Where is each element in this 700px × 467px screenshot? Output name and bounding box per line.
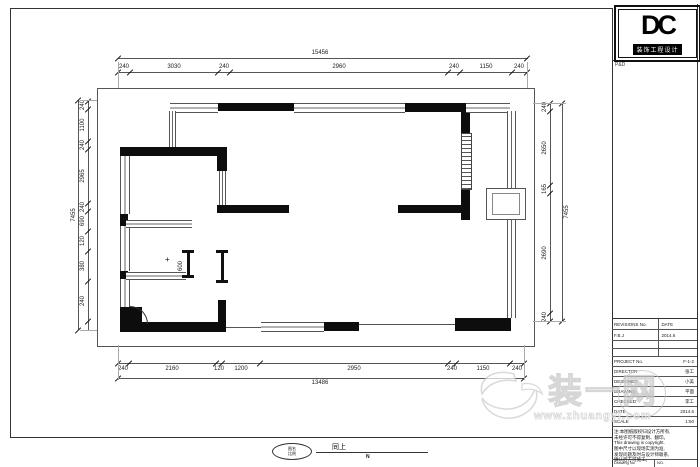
wall-segment [455, 318, 511, 331]
wall-segment [120, 147, 220, 156]
dim-line-right [550, 103, 551, 321]
door-jamb [187, 253, 190, 275]
center-cross-mark: + [165, 255, 170, 264]
dim-number: 120 [80, 236, 86, 246]
ellipse-line2: 比例 [288, 452, 296, 457]
dim-line-bottom-total [118, 378, 524, 379]
partition-segment [126, 220, 192, 228]
revision-date [658, 341, 697, 348]
dim-number: 2160 [165, 366, 178, 372]
window-segment [120, 156, 130, 214]
dim-line-top [118, 72, 528, 73]
revision-date [658, 349, 697, 356]
extension-line [527, 62, 528, 88]
window-segment [507, 111, 516, 188]
wall-segment [405, 103, 466, 112]
dim-number: 240 [512, 366, 522, 372]
dim-number: 240 [514, 64, 524, 70]
partition-segment [126, 272, 186, 280]
drawing-name-ellipse: 图名 比例 [272, 443, 312, 460]
dim-number: 690 [80, 216, 86, 226]
dim-number: 240 [118, 366, 128, 372]
dim-number: 15456 [312, 50, 329, 56]
date-label: DATE [658, 319, 697, 329]
dim-number: 240 [119, 64, 129, 70]
dim-number: 240 [80, 202, 86, 212]
project-no-value: F-1-2 [683, 359, 697, 364]
dc-logo-box: DC 装饰工程设计 [614, 5, 700, 62]
drawing-title-underline [316, 452, 428, 453]
checked-value: 李工 [685, 399, 697, 405]
dim-number: 2960 [332, 64, 345, 70]
dim-number: 240 [80, 100, 86, 110]
dim-number: 3030 [167, 64, 180, 70]
serial-no-en: NO. [655, 460, 664, 465]
scale-value: 1:50 [685, 419, 697, 424]
dim-number: 1100 [80, 119, 86, 132]
dim-number: 2965 [80, 169, 86, 182]
window-segment [466, 103, 510, 113]
window-segment [507, 218, 516, 318]
sheet-bottom-border [10, 437, 612, 438]
wall-line [226, 327, 261, 328]
cad-drawing-sheet: DC 装饰工程设计 P&D + 600 1545 [0, 0, 700, 467]
designer-value: 小美 [685, 379, 697, 385]
dim-number: 2690 [542, 246, 548, 259]
date-row-value: 2014.6 [680, 409, 697, 414]
drawing-title-sub: N [366, 454, 370, 460]
extension-line [118, 62, 119, 88]
wall-segment [324, 322, 359, 331]
dim-number: 120 [214, 366, 224, 372]
sheet-right-border [697, 4, 698, 467]
dim-number: 13486 [312, 380, 329, 386]
logo-sub-text: P&D [615, 62, 625, 68]
window-segment [169, 111, 176, 147]
dim-line-left-total [78, 100, 79, 330]
sheet-left-border [10, 8, 11, 437]
watermark-swirl-logo [476, 366, 550, 428]
title-block-notes: 注:本图纸版权归设计方所有, 未经许可不得复制、翻印。 This drawing… [612, 427, 697, 460]
revisions-label: REVISIONS No. [612, 322, 658, 327]
extension-line [533, 321, 566, 322]
dim-line-bottom [118, 363, 524, 364]
wall-segment [218, 103, 294, 111]
extension-line [524, 345, 525, 380]
serial-no-cell: NO. 递号 [655, 460, 697, 467]
dc-logo-inner-frame: DC 装饰工程设计 [618, 9, 697, 58]
door-jamb [182, 275, 194, 278]
dc-logo-text: DC [641, 12, 674, 39]
drawing-no-cell: Drawing No 图号 [612, 460, 655, 467]
dim-number: 380 [80, 261, 86, 271]
dim-number: 2950 [347, 366, 360, 372]
title-block-row [612, 341, 697, 349]
door-jamb [216, 280, 228, 283]
wall-segment [218, 300, 226, 322]
title-block-row: REVISIONS No. DATE [612, 319, 697, 330]
scale-label: SCALE [612, 419, 685, 424]
title-block-row: SCALE 1:50 [612, 417, 697, 427]
title-block-row: F.B.J 2014.6 [612, 330, 697, 341]
dim-number: 165 [542, 184, 548, 194]
door-jamb [221, 253, 224, 280]
drawing-value: 平面 [685, 389, 697, 395]
window-segment [461, 133, 472, 190]
dim-number: 2650 [542, 141, 548, 154]
dim-line-right-total [562, 103, 563, 321]
dim-number: 240 [449, 64, 459, 70]
extension-line [533, 103, 566, 104]
dim-number: 240 [80, 296, 86, 306]
dim-number: 7455 [71, 208, 77, 221]
dim-number: 240 [447, 366, 457, 372]
zhuangyiwang-stamp: 装一网 [618, 370, 666, 418]
title-block-footer: Drawing No 图号 NO. 递号 [612, 460, 697, 467]
wall-segment [461, 188, 470, 220]
title-block-row [612, 349, 697, 357]
revision-date: 2014.6 [658, 330, 697, 340]
extension-line [80, 100, 97, 101]
title-block-row: PROJECT No. F-1-2 [612, 357, 697, 367]
window-segment [170, 103, 218, 113]
dim-number: 240 [219, 64, 229, 70]
project-no-label: PROJECT No. [612, 359, 683, 364]
wall-segment [217, 147, 227, 171]
window-segment [120, 279, 130, 307]
dim-number: 7455 [564, 205, 570, 218]
revision-entry: F.B.J [612, 333, 658, 338]
wall-segment [398, 205, 461, 213]
bay-window [486, 188, 526, 220]
dim-number: 240 [80, 140, 86, 150]
window-segment [294, 103, 405, 113]
bay-window-inner [492, 193, 520, 215]
sheet-top-border [10, 8, 612, 9]
extension-line [118, 345, 119, 380]
window-segment [120, 226, 130, 271]
window-segment [261, 322, 324, 332]
dim-tick [524, 55, 530, 61]
wall-segment [217, 205, 289, 213]
dim-number: 1150 [480, 64, 493, 70]
dim-line-top-total [118, 58, 528, 59]
dc-logo-bar-text: 装饰工程设计 [633, 44, 681, 55]
extension-line [80, 330, 97, 331]
wall-line [359, 324, 455, 325]
dim-number: 1200 [234, 366, 247, 372]
drawing-title: 同上 [332, 442, 346, 452]
dim-line-left [88, 100, 89, 330]
dim-number: 600 [178, 261, 184, 271]
dim-number: 1150 [477, 366, 490, 372]
director-value: 张工 [685, 369, 697, 375]
partition-segment [219, 171, 226, 205]
drawing-no-en: Drawing No [612, 460, 635, 465]
